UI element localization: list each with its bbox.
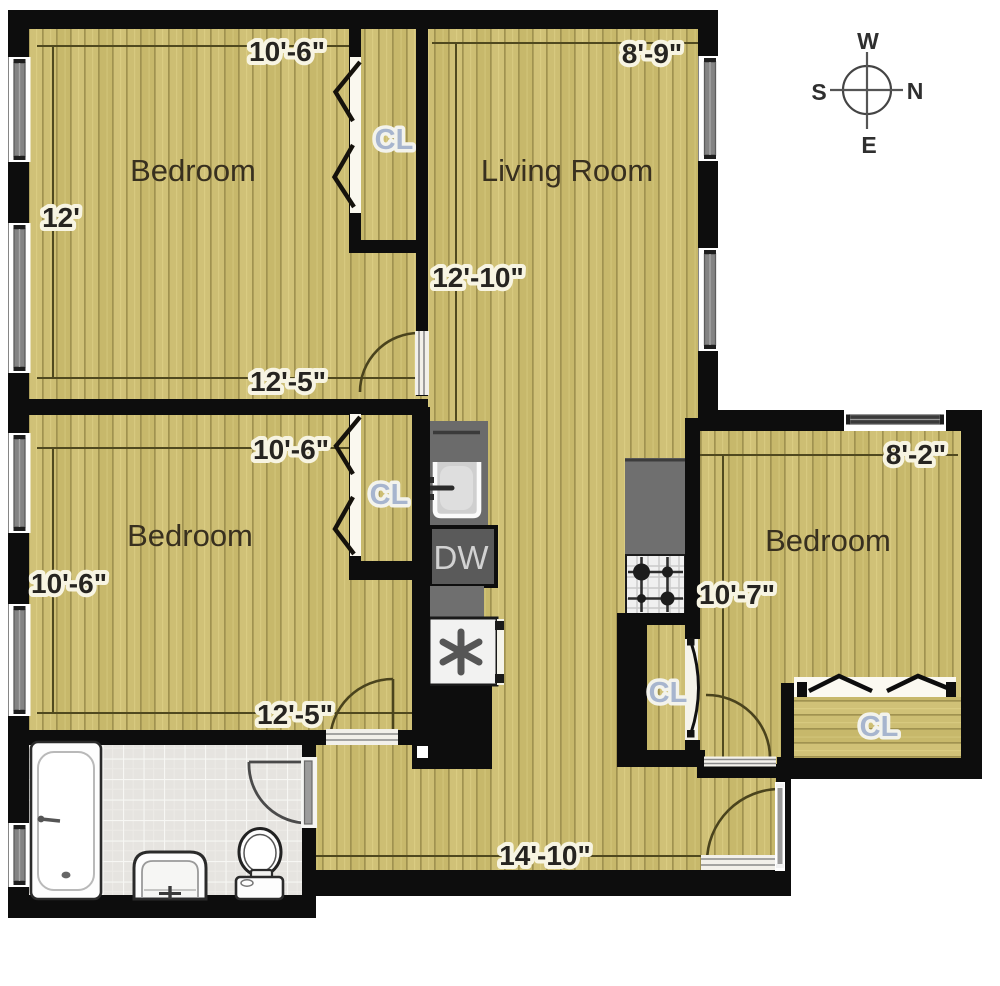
svg-text:CL: CL xyxy=(375,124,414,156)
svg-text:Bedroom: Bedroom xyxy=(130,153,256,188)
svg-text:CL: CL xyxy=(370,479,409,511)
svg-text:Bedroom: Bedroom xyxy=(127,518,253,553)
svg-text:12'-5": 12'-5" xyxy=(257,699,333,730)
svg-text:8'-9": 8'-9" xyxy=(622,38,682,69)
svg-text:12'-5": 12'-5" xyxy=(250,366,326,397)
svg-text:10'-6": 10'-6" xyxy=(31,568,107,599)
svg-text:S: S xyxy=(811,79,826,105)
svg-text:12': 12' xyxy=(42,202,80,233)
svg-text:10'-6": 10'-6" xyxy=(253,434,329,465)
svg-text:DW: DW xyxy=(434,539,490,576)
svg-text:8'-2": 8'-2" xyxy=(886,439,946,470)
svg-text:W: W xyxy=(857,28,879,54)
svg-text:CL: CL xyxy=(649,677,688,709)
svg-text:CL: CL xyxy=(860,711,899,743)
svg-text:12'-10": 12'-10" xyxy=(432,262,524,293)
svg-text:E: E xyxy=(861,132,876,158)
svg-text:14'-10": 14'-10" xyxy=(499,840,591,871)
svg-text:10'-7": 10'-7" xyxy=(699,579,775,610)
svg-text:10'-6": 10'-6" xyxy=(249,36,325,67)
svg-text:Living Room: Living Room xyxy=(481,153,653,188)
svg-text:N: N xyxy=(907,78,924,104)
svg-text:Bedroom: Bedroom xyxy=(765,523,891,558)
